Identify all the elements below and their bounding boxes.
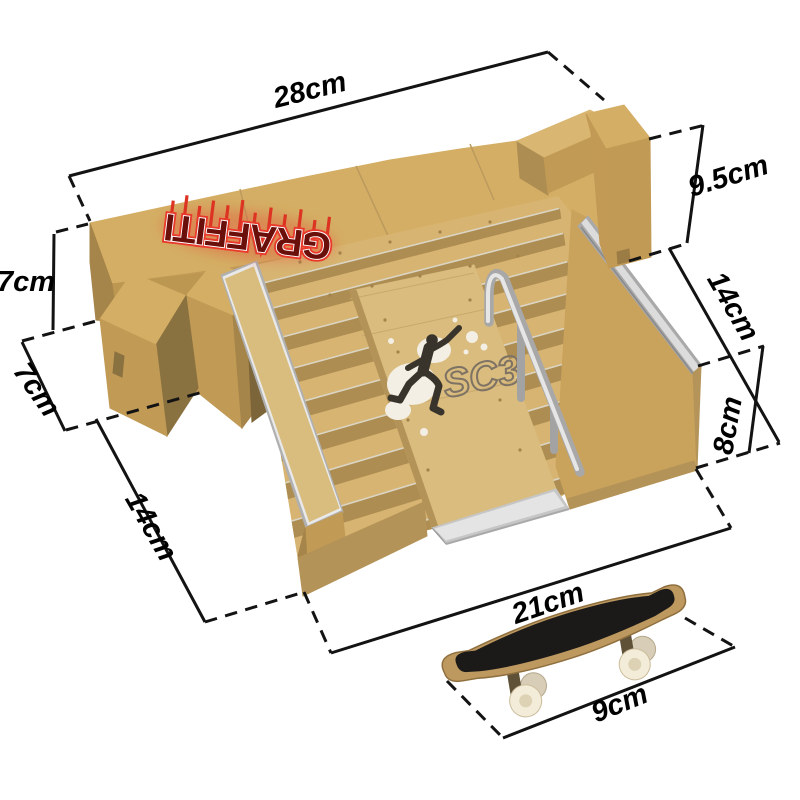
svg-text:7cm: 7cm: [0, 266, 55, 298]
